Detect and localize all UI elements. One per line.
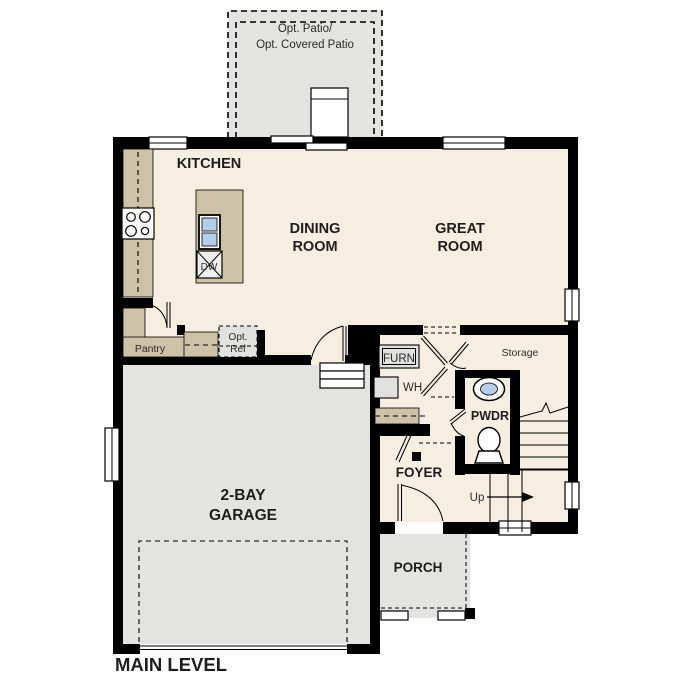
dishwasher-label: DW bbox=[201, 262, 218, 273]
patio-label-line1: Opt. Patio/ bbox=[278, 23, 333, 35]
water-heater-label: WH bbox=[403, 382, 422, 394]
dining-room-label-line1: DINING bbox=[290, 221, 341, 237]
toilet bbox=[475, 428, 503, 464]
foyer-window-bottom bbox=[499, 521, 531, 535]
garage-label-line1: 2-BAY bbox=[220, 487, 266, 504]
great-room-label-line1: GREAT bbox=[435, 221, 485, 237]
storage-label: Storage bbox=[502, 347, 539, 359]
powder-sink bbox=[474, 378, 505, 401]
range-cooktop bbox=[122, 208, 154, 239]
furnace-label: FURN bbox=[383, 353, 415, 365]
foyer-label: FOYER bbox=[396, 465, 443, 480]
coat-closet-post bbox=[412, 452, 421, 461]
garage-overhead-door bbox=[140, 646, 347, 650]
patio-label-line2: Opt. Covered Patio bbox=[256, 39, 354, 51]
stairs-up-label: Up bbox=[470, 492, 485, 504]
opt-ref-label-line2: Ref bbox=[230, 344, 246, 355]
pantry-label: Pantry bbox=[135, 343, 166, 355]
great-room-window-top bbox=[443, 137, 505, 149]
water-heater-box bbox=[374, 377, 398, 398]
floor-plan: Opt. Patio/ Opt. Covered Patio KITCHEN D… bbox=[0, 0, 687, 687]
stair-landing-window-right bbox=[565, 482, 579, 509]
kitchen-label: KITCHEN bbox=[177, 156, 241, 172]
garage-window-left bbox=[105, 428, 119, 481]
porch-label: PORCH bbox=[394, 560, 443, 575]
island-sink bbox=[199, 215, 220, 249]
great-room-label-line2: ROOM bbox=[437, 239, 482, 255]
dining-room-label-line2: ROOM bbox=[292, 239, 337, 255]
fireplace-bump bbox=[311, 88, 348, 137]
powder-room-label: PWDR bbox=[471, 409, 509, 423]
opt-ref-label-line1: Opt. bbox=[229, 332, 248, 343]
kitchen-window bbox=[149, 137, 187, 149]
garage-steps bbox=[320, 363, 364, 388]
garage-floor bbox=[123, 365, 372, 644]
great-room-window-right bbox=[565, 289, 579, 321]
porch-corner-post bbox=[465, 608, 475, 619]
plan-title: MAIN LEVEL bbox=[115, 654, 227, 675]
porch-floor bbox=[380, 534, 470, 618]
front-door-opening bbox=[395, 522, 443, 534]
garage-label-line2: GARAGE bbox=[209, 507, 277, 524]
